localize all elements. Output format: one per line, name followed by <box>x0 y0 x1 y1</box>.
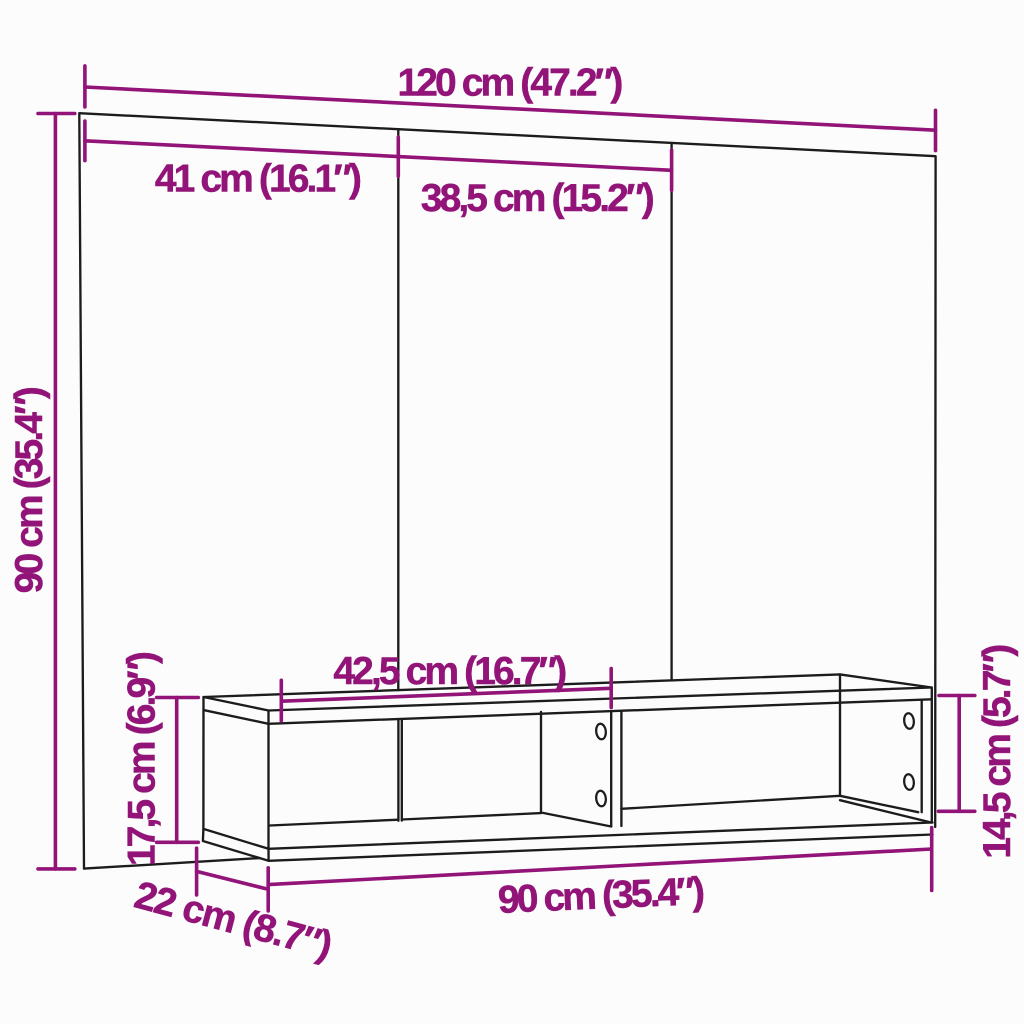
svg-text:90 cm (35.4″): 90 cm (35.4″) <box>497 870 705 922</box>
svg-text:38,5 cm (15.2″): 38,5 cm (15.2″) <box>421 177 654 220</box>
svg-text:42,5 cm (16.7″): 42,5 cm (16.7″) <box>333 650 566 693</box>
svg-text:17,5 cm (6.9″): 17,5 cm (6.9″) <box>121 652 164 866</box>
svg-text:14,5 cm (5.7″): 14,5 cm (5.7″) <box>976 645 1019 859</box>
svg-text:41 cm (16.1″): 41 cm (16.1″) <box>155 158 361 201</box>
svg-text:120 cm (47.2″): 120 cm (47.2″) <box>397 61 622 104</box>
svg-text:90 cm (35.4″): 90 cm (35.4″) <box>8 387 51 593</box>
